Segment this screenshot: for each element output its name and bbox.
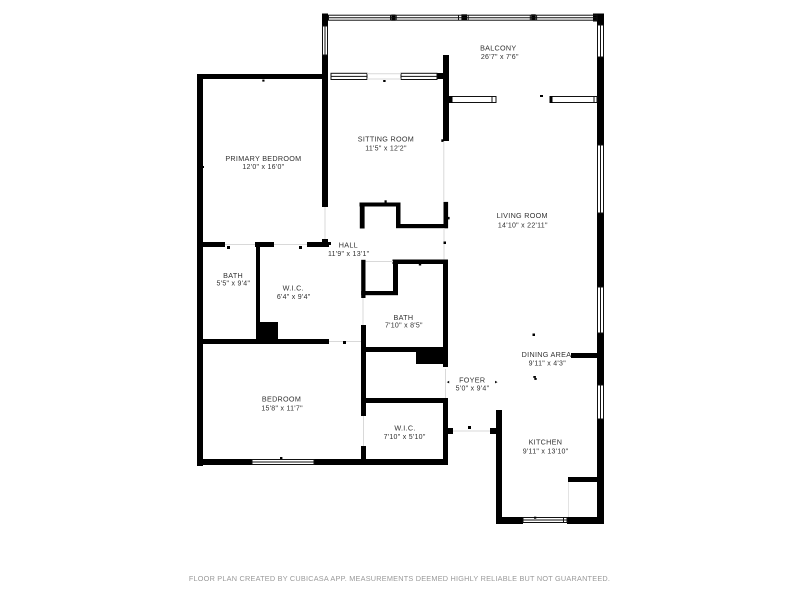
svg-text:HALL: HALL: [339, 241, 358, 250]
svg-text:11'9" x 13'1": 11'9" x 13'1": [328, 251, 370, 258]
svg-text:DINING AREA: DINING AREA: [522, 350, 572, 359]
svg-text:SITTING ROOM: SITTING ROOM: [358, 134, 414, 143]
svg-text:BEDROOM: BEDROOM: [262, 394, 301, 403]
svg-text:5'0" x 9'4": 5'0" x 9'4": [456, 386, 490, 393]
svg-text:W.I.C.: W.I.C.: [394, 424, 415, 433]
svg-text:26'7" x 7'6": 26'7" x 7'6": [481, 54, 519, 61]
svg-text:BALCONY: BALCONY: [480, 44, 516, 53]
svg-text:9'11" x 13'10": 9'11" x 13'10": [523, 449, 569, 456]
svg-text:9'11" x 4'3": 9'11" x 4'3": [529, 361, 567, 368]
svg-text:FLOOR PLAN CREATED BY CUBICASA: FLOOR PLAN CREATED BY CUBICASA APP. MEAS…: [189, 574, 610, 583]
svg-text:BATH: BATH: [393, 313, 413, 322]
svg-text:LIVING ROOM: LIVING ROOM: [497, 211, 548, 220]
svg-text:PRIMARY BEDROOM: PRIMARY BEDROOM: [225, 154, 301, 163]
svg-text:5'5" x 9'4": 5'5" x 9'4": [217, 280, 251, 287]
svg-text:7'10" x 5'10": 7'10" x 5'10": [384, 434, 426, 441]
svg-text:BATH: BATH: [223, 271, 243, 280]
svg-text:15'8" x 11'7": 15'8" x 11'7": [261, 405, 303, 412]
svg-text:FOYER: FOYER: [459, 376, 485, 385]
svg-text:6'4" x 9'4": 6'4" x 9'4": [277, 294, 311, 301]
svg-text:12'0" x 16'0": 12'0" x 16'0": [242, 164, 284, 171]
svg-text:14'10" x 22'11": 14'10" x 22'11": [498, 222, 548, 229]
svg-text:7'10" x 8'5": 7'10" x 8'5": [385, 323, 423, 330]
svg-text:KITCHEN: KITCHEN: [529, 437, 563, 446]
svg-text:W.I.C.: W.I.C.: [283, 283, 304, 292]
svg-text:11'5" x 12'2": 11'5" x 12'2": [365, 145, 407, 152]
